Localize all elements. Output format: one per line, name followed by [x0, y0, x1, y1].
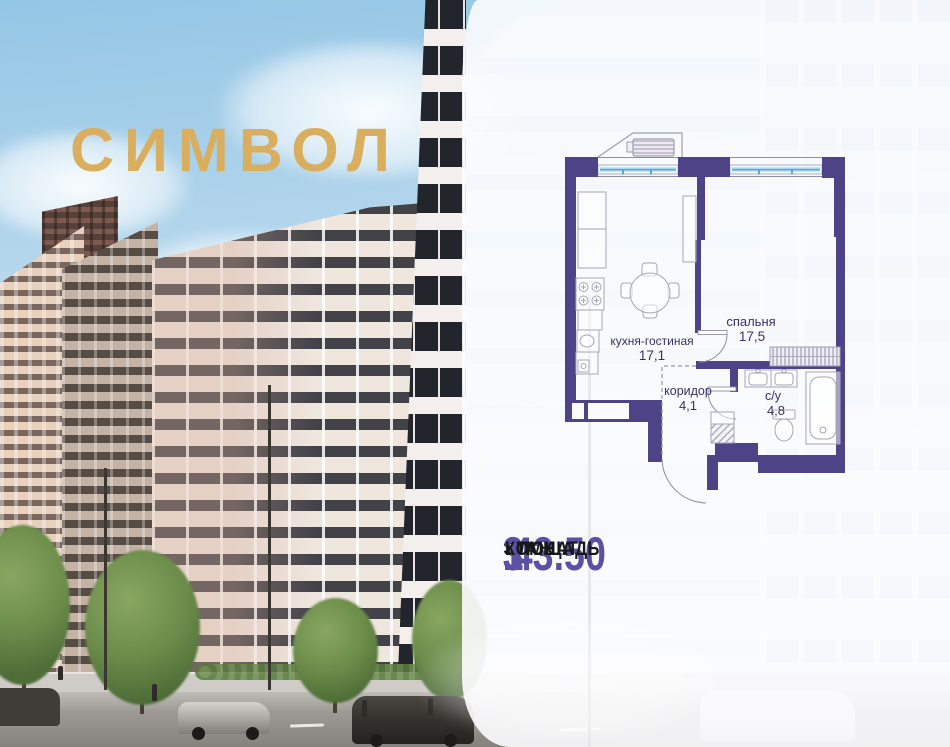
walls [565, 157, 845, 490]
washing-machine-icon [711, 424, 734, 443]
door-entrance [662, 459, 706, 503]
apartment-listing-card[interactable]: СИМВОЛ [0, 0, 950, 747]
counter-icon [578, 310, 602, 330]
room-label-bedroom: спальня [726, 314, 775, 329]
car-wheel [370, 734, 383, 747]
window-kitchen [598, 165, 678, 175]
pedestrian [58, 666, 63, 680]
apartment-stats: 43.50 ПЛОЩАДЬ 3 ЭТАЖ 1 КОМНАТ [500, 530, 896, 620]
car-wheel [246, 727, 259, 740]
balcony-outline [598, 133, 682, 157]
lamp-pole [268, 385, 271, 690]
car-wheel [192, 727, 205, 740]
stove-icon [576, 278, 604, 310]
room-area-corridor: 4,1 [679, 398, 697, 413]
floor-plan: кухня-гостиная 17,1 спальня 17,5 коридор… [552, 118, 858, 518]
door-bedroom [698, 331, 727, 363]
fridge-icon [578, 192, 606, 229]
room-label-corridor: коридор [664, 384, 712, 398]
floor-plan-svg: кухня-гостиная 17,1 спальня 17,5 коридор… [552, 118, 858, 518]
wall-niches [572, 403, 629, 419]
closet-shelf-icon [711, 412, 734, 424]
room-label-kitchen: кухня-гостиная [610, 334, 693, 348]
toilet-icon [775, 419, 793, 441]
kitchen-sink-icon [580, 335, 594, 347]
room-area-bathroom: 4,8 [767, 403, 785, 418]
project-logo: СИМВОЛ [68, 120, 402, 181]
room-label-bathroom: с/у [765, 389, 782, 403]
dining-table-icon [621, 263, 679, 318]
lamp-pole [104, 468, 107, 690]
tree [85, 550, 200, 705]
room-area-kitchen: 17,1 [639, 348, 665, 363]
faded-highlight [420, 620, 720, 740]
tree [293, 598, 378, 703]
ac-unit-icon [633, 139, 674, 156]
room-area-bedroom: 17,5 [739, 329, 765, 344]
wardrobe-icon [683, 196, 696, 262]
window-bedroom [730, 165, 822, 175]
pedestrian [362, 700, 367, 717]
car-left-edge [0, 688, 60, 726]
cabinet-icon [578, 229, 606, 268]
pedestrian [152, 684, 157, 701]
